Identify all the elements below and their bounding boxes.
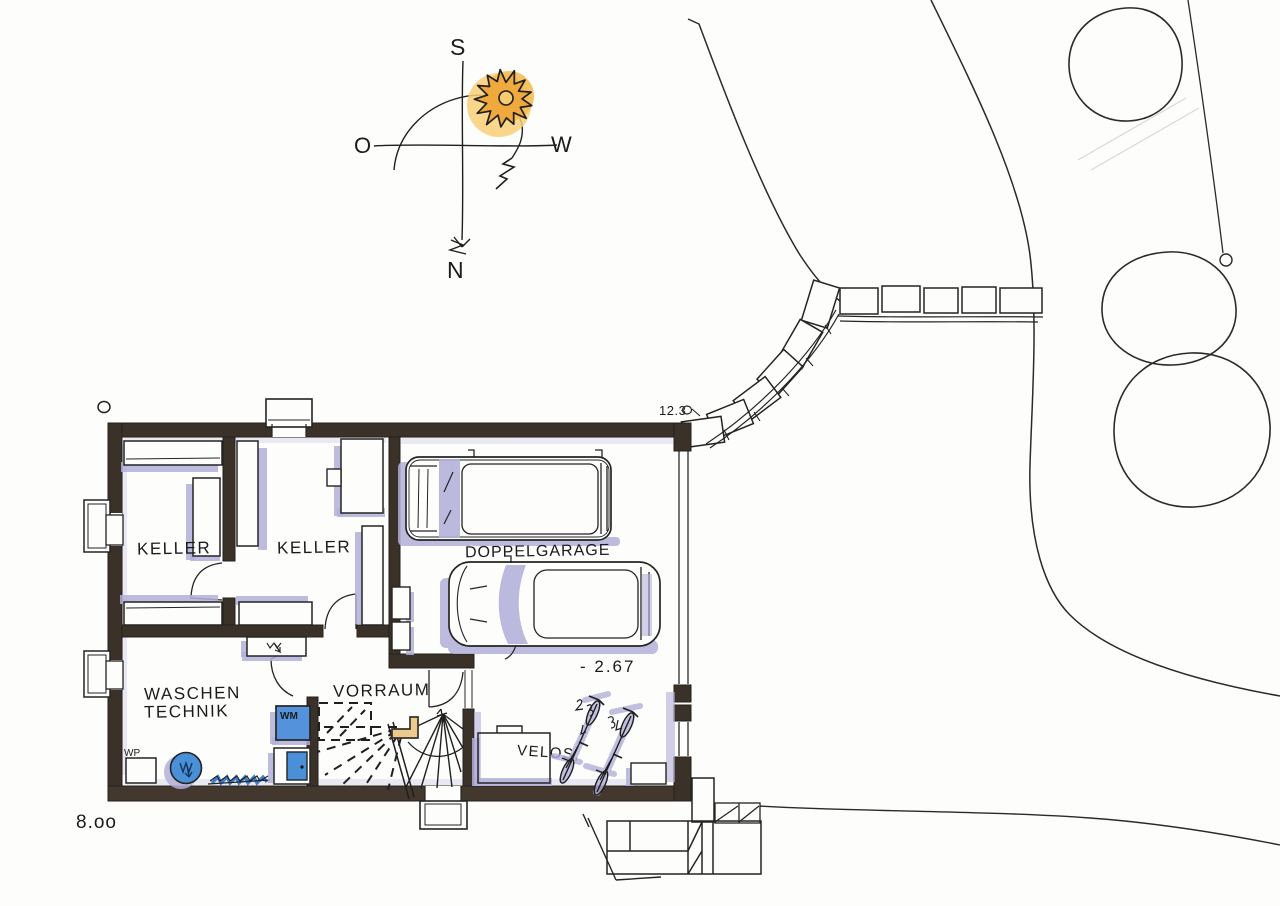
svg-text:VORRAUM: VORRAUM — [333, 680, 431, 701]
svg-text:TECHNIK: TECHNIK — [144, 701, 229, 721]
svg-text:N: N — [447, 257, 465, 283]
svg-text:- 2.67: - 2.67 — [580, 657, 635, 676]
svg-text:WM: WM — [280, 711, 298, 722]
svg-text:KELLER: KELLER — [137, 538, 212, 558]
svg-text:8.oo: 8.oo — [76, 812, 117, 833]
svg-text:O: O — [354, 133, 371, 158]
svg-text:DOPPELGARAGE: DOPPELGARAGE — [465, 542, 611, 562]
svg-text:KELLER: KELLER — [277, 537, 352, 557]
svg-text:S: S — [450, 34, 466, 60]
